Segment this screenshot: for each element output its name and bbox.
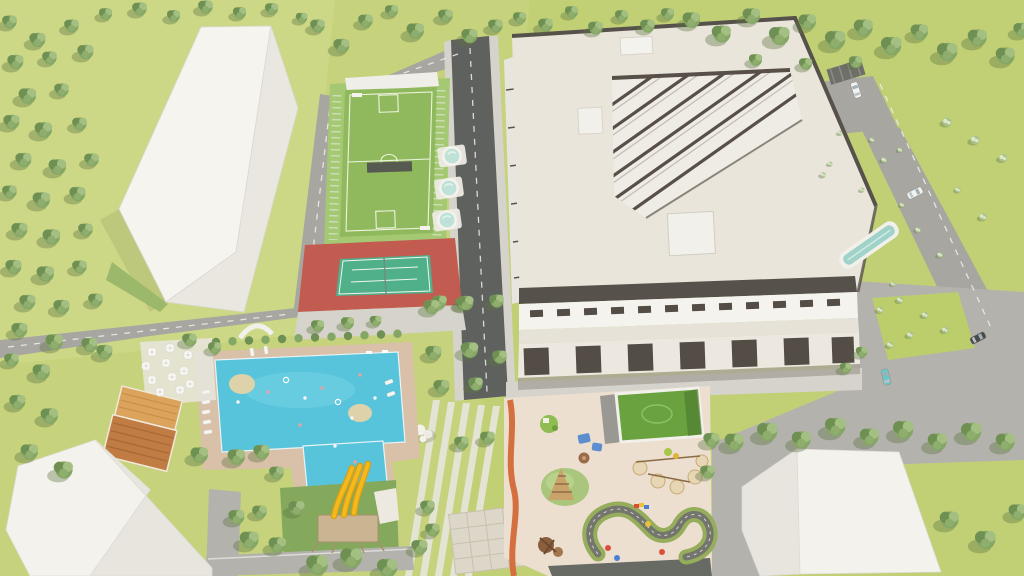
hedge-bush bbox=[245, 336, 253, 344]
front-facade bbox=[518, 276, 860, 390]
parasol-icon bbox=[162, 359, 171, 368]
person-dot bbox=[333, 444, 336, 447]
person-dot bbox=[266, 390, 269, 393]
multisport-court bbox=[324, 72, 450, 250]
aerial-render bbox=[0, 0, 1024, 576]
hedge-bush bbox=[311, 333, 319, 341]
hedge-bush bbox=[327, 333, 335, 341]
hedge-bush bbox=[278, 335, 286, 343]
parasol-icon bbox=[186, 380, 195, 389]
parasol-icon bbox=[156, 388, 165, 397]
spa-pool bbox=[434, 176, 465, 200]
hedge-bush bbox=[393, 330, 401, 338]
person-dot bbox=[303, 396, 306, 399]
person-dot bbox=[350, 416, 353, 419]
parasol-icon bbox=[180, 367, 189, 376]
spa-pool bbox=[437, 144, 468, 168]
hedge-bush bbox=[294, 334, 302, 342]
hedge-bush bbox=[377, 330, 385, 338]
person-dot bbox=[298, 423, 301, 426]
hedge-bush bbox=[261, 336, 269, 344]
parasol-icon bbox=[148, 348, 157, 357]
scene-canvas bbox=[0, 0, 1024, 576]
hedge-bush bbox=[228, 337, 236, 345]
person-dot bbox=[236, 400, 239, 403]
person-dot bbox=[320, 386, 323, 389]
person-dot bbox=[373, 396, 376, 399]
hedge-bush bbox=[360, 331, 368, 339]
parasol-icon bbox=[176, 386, 185, 395]
parasol-icon bbox=[142, 362, 151, 371]
parasol-icon bbox=[166, 344, 175, 353]
person-dot bbox=[358, 373, 361, 376]
parasol-icon bbox=[184, 351, 193, 360]
person-dot bbox=[353, 460, 356, 463]
hedge-bush bbox=[344, 332, 352, 340]
roof-court bbox=[616, 388, 703, 442]
parasol-icon bbox=[148, 376, 157, 385]
spa-pool bbox=[432, 208, 463, 232]
parasol-icon bbox=[168, 373, 177, 382]
